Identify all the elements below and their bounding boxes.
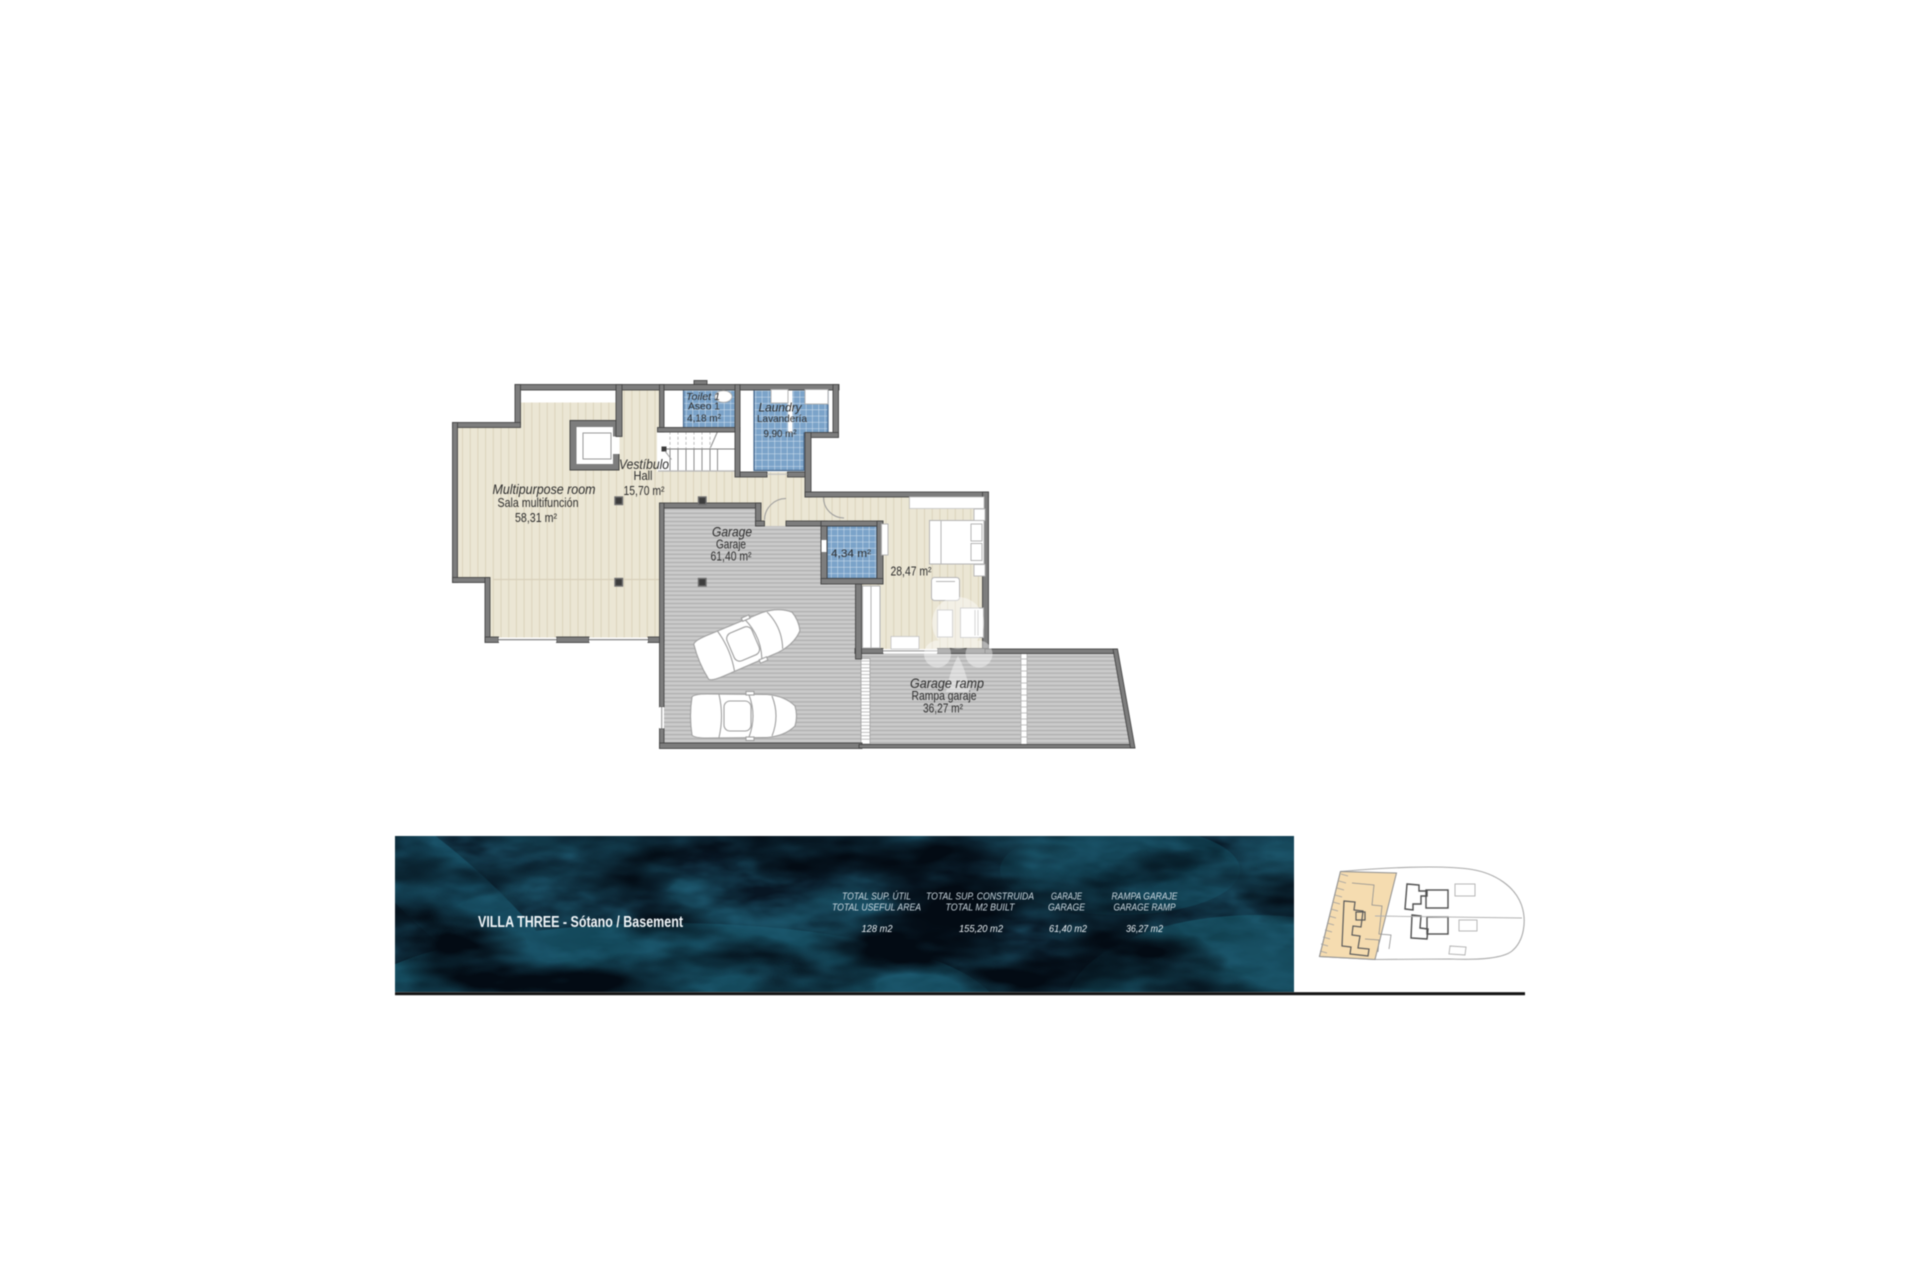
svg-text:Sala multifunción: Sala multifunción — [498, 496, 579, 510]
svg-text:RAMPA GARAJE: RAMPA GARAJE — [1112, 892, 1178, 903]
svg-text:Aseo 1: Aseo 1 — [688, 402, 720, 413]
svg-text:Hall: Hall — [634, 469, 653, 483]
svg-text:36,27 m²: 36,27 m² — [923, 702, 963, 716]
svg-text:4,34 m²: 4,34 m² — [831, 548, 871, 560]
svg-text:VILLA THREE - Sótano / Basemen: VILLA THREE - Sótano / Basement — [478, 914, 684, 931]
svg-text:61,40 m²: 61,40 m² — [711, 550, 752, 564]
svg-text:28,47 m²: 28,47 m² — [891, 565, 932, 579]
svg-text:128 m2: 128 m2 — [862, 923, 893, 935]
svg-text:36,27 m2: 36,27 m2 — [1126, 923, 1163, 935]
svg-text:4,18 m²: 4,18 m² — [687, 414, 722, 425]
svg-text:15,70 m²: 15,70 m² — [624, 484, 665, 498]
svg-text:GARAGE RAMP: GARAGE RAMP — [1114, 903, 1176, 914]
svg-text:TOTAL SUP. CONSTRUIDA: TOTAL SUP. CONSTRUIDA — [926, 892, 1034, 903]
svg-text:GARAJE: GARAJE — [1051, 892, 1082, 903]
svg-text:GARAGE: GARAGE — [1048, 903, 1085, 914]
svg-text:Lavandería: Lavandería — [757, 413, 807, 425]
svg-text:155,20 m2: 155,20 m2 — [959, 923, 1003, 935]
svg-text:58,31 m²: 58,31 m² — [515, 511, 557, 525]
svg-text:TOTAL M2 BUILT: TOTAL M2 BUILT — [946, 903, 1016, 914]
svg-text:Multipurpose room: Multipurpose room — [493, 482, 596, 497]
svg-text:TOTAL USEFUL AREA: TOTAL USEFUL AREA — [832, 903, 921, 914]
svg-text:61,40 m2: 61,40 m2 — [1049, 923, 1087, 935]
svg-text:TOTAL SUP. ÚTIL: TOTAL SUP. ÚTIL — [842, 892, 911, 903]
svg-text:9,90 m²: 9,90 m² — [764, 428, 797, 440]
